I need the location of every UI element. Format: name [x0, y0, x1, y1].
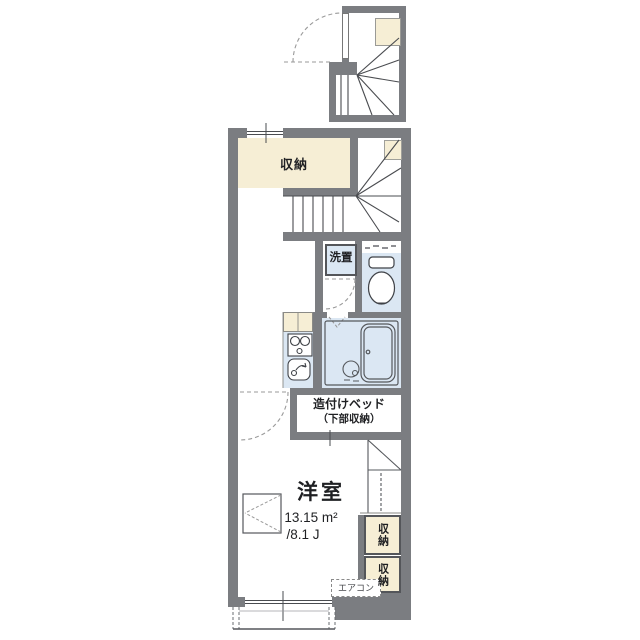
bathroom [322, 318, 401, 388]
wall [313, 312, 322, 395]
toilet-room [362, 253, 401, 312]
window-toilet [362, 243, 399, 253]
wall [290, 388, 411, 395]
western-room-area-sqm: 13.15 m² [266, 510, 356, 526]
wall [350, 138, 358, 196]
built-in-bed-label-line2: （下部収納） [297, 413, 401, 425]
built-in-bed-label-line1: 造付けベッド [297, 398, 401, 412]
entrance-cabinet [375, 18, 401, 46]
wall [283, 188, 350, 196]
closet-upper-label: 収納 [375, 523, 391, 547]
kitchen [283, 332, 313, 388]
unit-outer-wall [335, 593, 411, 620]
wall [315, 241, 323, 320]
entrance-door-arc [284, 13, 342, 62]
entrance-door-opening [342, 13, 349, 59]
storage-room-label: 収納 [238, 158, 350, 173]
closet-upper-label-wrap: 収納 [364, 515, 401, 555]
closet-lower-label: 収納 [375, 563, 391, 587]
kitchen-counter [283, 312, 313, 332]
window-bottom [245, 597, 332, 607]
western-room-area-jo: /8.1 J [258, 527, 348, 543]
laundry-label: 洗置 [325, 252, 357, 265]
balcony [233, 607, 335, 629]
stair-wall-notch [331, 62, 357, 75]
window-top [247, 128, 283, 138]
stair-cabinet [384, 140, 402, 160]
closet-lower-label-wrap: 収納 [364, 556, 401, 593]
wall [283, 232, 401, 241]
wall [290, 432, 411, 440]
entrance-stairwell [336, 75, 349, 115]
floor-plan: エアコン [0, 0, 640, 640]
western-room-label: 洋室 [276, 481, 366, 505]
